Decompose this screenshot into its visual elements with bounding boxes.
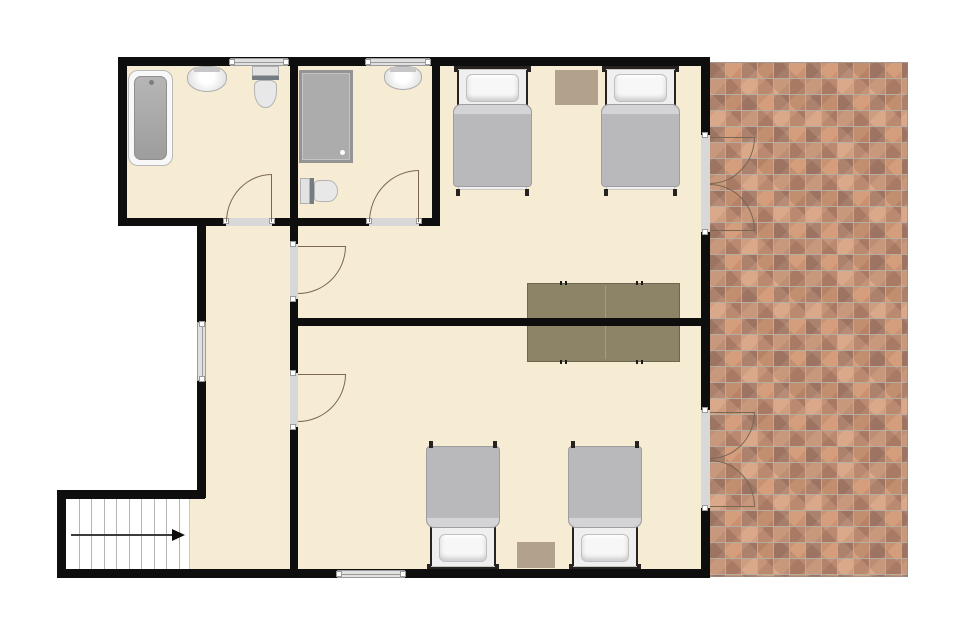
toilet-tank bbox=[252, 66, 279, 76]
wall-segment bbox=[701, 57, 710, 135]
window-glass-line bbox=[367, 62, 429, 63]
bed bbox=[454, 66, 531, 196]
window-frame-cap bbox=[365, 59, 371, 65]
wall-segment bbox=[290, 318, 710, 326]
faucet-icon bbox=[149, 80, 154, 85]
sink-ledge bbox=[390, 67, 415, 72]
chair-mark bbox=[636, 281, 638, 285]
window-glass-line bbox=[338, 574, 404, 575]
rug bbox=[555, 70, 598, 105]
window-frame-cap bbox=[229, 59, 235, 65]
window-frame-cap bbox=[336, 571, 342, 577]
chair-mark bbox=[565, 360, 567, 364]
door-frame-cap bbox=[702, 505, 708, 511]
wall-segment bbox=[57, 490, 66, 578]
bed-foot bbox=[456, 189, 460, 196]
wall-segment bbox=[197, 218, 206, 322]
bed bbox=[569, 441, 641, 570]
window bbox=[337, 570, 405, 578]
chair-mark bbox=[641, 281, 643, 285]
door-threshold bbox=[290, 373, 298, 427]
door-frame-cap bbox=[290, 424, 296, 430]
staircase bbox=[65, 498, 190, 570]
bed bbox=[427, 441, 499, 570]
chair-mark bbox=[560, 360, 562, 364]
toilet bbox=[300, 178, 338, 204]
bed-foot bbox=[493, 441, 497, 448]
blanket bbox=[568, 446, 642, 528]
toilet-tank bbox=[300, 178, 310, 204]
wall-segment bbox=[290, 57, 298, 226]
sink-ledge bbox=[194, 67, 221, 72]
blanket-fold bbox=[569, 518, 641, 527]
rug bbox=[517, 542, 555, 568]
window bbox=[230, 58, 288, 66]
blanket-fold bbox=[602, 105, 679, 114]
chair-mark bbox=[560, 281, 562, 285]
door-threshold bbox=[701, 410, 710, 508]
bed-foot bbox=[604, 189, 608, 196]
door-threshold bbox=[290, 244, 298, 299]
bed-foot bbox=[429, 441, 433, 448]
bed bbox=[602, 66, 679, 196]
arrow-head-icon bbox=[172, 529, 185, 541]
blanket-fold bbox=[427, 518, 499, 527]
window-glass-line bbox=[202, 323, 203, 380]
blanket bbox=[601, 104, 680, 187]
sink bbox=[187, 66, 227, 92]
door-frame-cap bbox=[290, 370, 296, 376]
blanket bbox=[453, 104, 532, 187]
wall-segment bbox=[432, 57, 440, 226]
blanket bbox=[426, 446, 500, 528]
blanket-fold bbox=[454, 105, 531, 114]
window bbox=[366, 58, 430, 66]
shower-drain-icon bbox=[340, 150, 345, 155]
chair-mark bbox=[636, 360, 638, 364]
floor-area bbox=[188, 498, 205, 572]
door-frame-cap bbox=[702, 132, 708, 138]
toilet-bowl bbox=[254, 80, 277, 108]
bathtub bbox=[128, 70, 173, 166]
wall-segment bbox=[701, 508, 710, 578]
window-frame-cap bbox=[283, 59, 289, 65]
bed-foot bbox=[525, 189, 529, 196]
door-frame-cap bbox=[290, 241, 296, 247]
bed-foot bbox=[635, 441, 639, 448]
wall-segment bbox=[197, 381, 206, 498]
pillow bbox=[581, 534, 630, 562]
toilet-bowl bbox=[314, 180, 338, 202]
window-frame-cap bbox=[400, 571, 406, 577]
window-frame-cap bbox=[425, 59, 431, 65]
bed-foot bbox=[571, 441, 575, 448]
window bbox=[197, 322, 206, 381]
bed-foot bbox=[673, 189, 677, 196]
floor-plan bbox=[0, 0, 960, 640]
chair-mark bbox=[565, 281, 567, 285]
door-frame-cap bbox=[702, 229, 708, 235]
door-threshold bbox=[701, 135, 710, 232]
direction-arrow bbox=[71, 534, 174, 536]
window-frame-cap bbox=[199, 321, 205, 327]
shower bbox=[299, 70, 353, 163]
wall-segment bbox=[290, 427, 298, 570]
pillow bbox=[614, 74, 666, 102]
pillow bbox=[439, 534, 488, 562]
wall-segment bbox=[290, 299, 298, 373]
window-glass-line bbox=[231, 62, 287, 63]
tub-basin bbox=[134, 76, 167, 160]
sink bbox=[384, 66, 422, 90]
door-frame-cap bbox=[290, 296, 296, 302]
window-frame-cap bbox=[199, 376, 205, 382]
pillow bbox=[466, 74, 518, 102]
wall-segment bbox=[118, 57, 127, 226]
wall-segment bbox=[118, 218, 226, 226]
wall-segment bbox=[272, 218, 369, 226]
door-frame-cap bbox=[702, 407, 708, 413]
chair-mark bbox=[641, 360, 643, 364]
toilet bbox=[252, 66, 279, 108]
wall-segment bbox=[57, 490, 205, 499]
